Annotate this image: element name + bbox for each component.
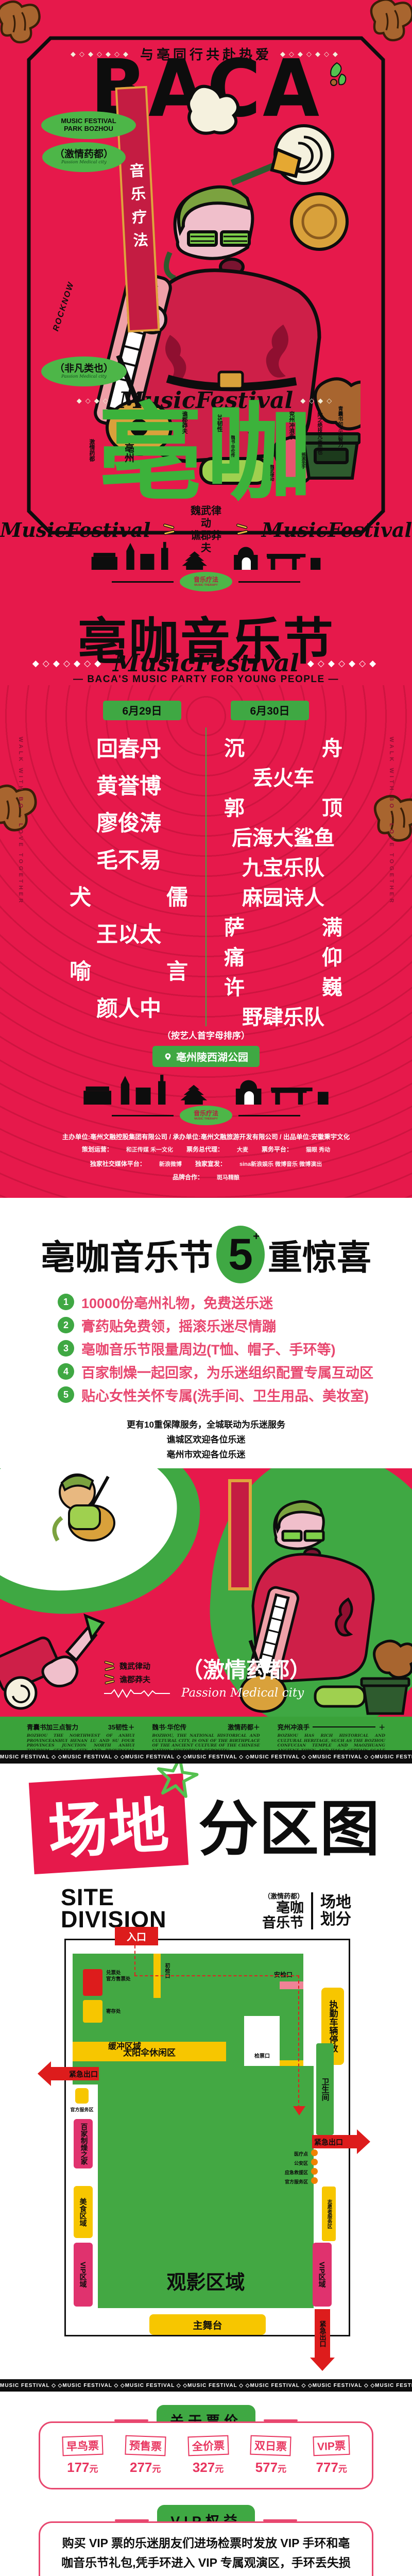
ticket-unit: 元	[215, 2464, 224, 2474]
divider-line	[112, 581, 174, 583]
music-festival-script: MusicFestival	[113, 649, 299, 677]
emergency-exit-arrow-down: 紧急出口	[315, 2309, 330, 2359]
emergency-exit-label: 紧急出口	[69, 2069, 98, 2079]
divider-line	[238, 1115, 300, 1116]
surprise-item: 3亳咖音乐节限量周边(T恤、帽子、手环等)	[58, 1340, 373, 1357]
venue-row: 亳州陵西湖公园	[0, 1046, 412, 1067]
therapy-title: 音乐疗法	[194, 1110, 218, 1117]
therapy-sub: MUSIC THERAPY	[194, 584, 218, 587]
toilet-zone: 卫生间	[316, 2043, 334, 2135]
security-label: 安检口	[274, 1970, 293, 1979]
lineup-item: 郭顶	[224, 791, 342, 821]
lineup-item: 许巍	[224, 971, 342, 1001]
side-note: 亳州	[122, 443, 135, 463]
storage-box	[83, 2000, 102, 2023]
info-column-head: 兖州冲浪手 ＋	[278, 1722, 385, 1732]
service-area-label: 官方服务区	[64, 2106, 100, 2113]
site-right-small: （激情药都）	[262, 1891, 304, 1901]
diamond-row-icon: ◆◇◆◇◆◇◆	[32, 658, 105, 669]
vip-description: 购买 VIP 票的乐迷朋友们进场检票时发放 VIP 手环和亳咖音乐节礼包,凭手环…	[59, 2533, 353, 2576]
sponsor-logos: 斑马精酿	[217, 1173, 239, 1181]
slogan-badge-1: （激情药都） Passion Medical city	[42, 142, 126, 172]
mallets-icon	[103, 1673, 116, 1686]
lineup-item: 犬儒	[70, 880, 188, 911]
sponsor-label: 品牌合作：	[173, 1173, 203, 1181]
ticket-unit: 元	[152, 2464, 161, 2474]
item-number-icon: 1	[58, 1294, 74, 1310]
divider-line	[238, 581, 300, 583]
vip-zone-left: VIP区域	[74, 2243, 93, 2307]
info-column-3: 兖州冲浪手 ＋ BOZHOU HAS RICH HISTORICAL AND C…	[278, 1722, 385, 1750]
ticker-text: MUSIC FESTIVAL ◇ ◇	[250, 2383, 312, 2388]
surprise-text: 10000份亳州礼物，免费送乐迷	[81, 1292, 273, 1312]
lineup-item: 九宝乐队	[242, 851, 324, 881]
stamp-block: 魏武律动 谯郡莽夫	[103, 1660, 180, 1701]
ticket-type: 预售票277元	[125, 2436, 166, 2476]
side-note: 激情药都	[88, 439, 96, 462]
script-row-3: ◆◇◆◇◆◇◆ MusicFestival ◆◇◆◇◆◇◆	[0, 649, 412, 677]
skyline-silhouette	[0, 540, 412, 570]
ticket-check-label: 检票口	[254, 2052, 270, 2059]
info-zh-right: 激情药都＋	[228, 1722, 260, 1732]
lineup-item: 黄誉博	[96, 769, 161, 800]
ticket-type: 早鸟票177元	[62, 2436, 103, 2476]
ticket-name: VIP票	[313, 2435, 350, 2455]
site-right-a1: 亳咖	[262, 1901, 304, 1916]
mallets-icon	[103, 1660, 116, 1672]
surprises-title: 亳咖音乐节 5 + 重惊喜	[0, 1226, 412, 1283]
lineup-item: 沉舟	[224, 732, 342, 761]
therapy-badge-row: 音乐疗法 MUSIC THERAPY	[0, 572, 412, 591]
info-zh-left: 兖州冲浪手	[278, 1722, 310, 1732]
park-badge: MUSIC FESTIVAL PARK BOZHOU	[41, 111, 136, 139]
site-right-b1: 场地	[320, 1894, 351, 1911]
police-dot-icon	[311, 2159, 318, 2165]
stamp-line2: 谯郡莽夫	[119, 1675, 150, 1685]
venue-map: 入口 缓冲区域 兑票处 官方售票处 寄存处 初检口 安检口 检票口 执勤车辆停放…	[64, 1939, 350, 2336]
ticker-text: MUSIC FESTIVAL ◇ ◇	[0, 1754, 62, 1760]
surprises-list: 110000份亳州礼物，免费送乐迷 2膏药贴免费领，摇滚乐迷尽情蹦 3亳咖音乐节…	[58, 1294, 373, 1410]
music-festival-script: MusicFestival	[0, 518, 150, 541]
lineup-divider	[205, 727, 207, 1026]
ticket-price: 177	[67, 2460, 89, 2475]
surprise-item: 4百家制燥一起回家，为乐迷组织配置专属互动区	[58, 1363, 373, 1380]
entry-path	[298, 1975, 299, 2108]
entry-path	[134, 1975, 299, 1976]
big-green-wordmark: 亳咖	[0, 401, 412, 506]
official-ticket-label: 官方售票处	[106, 1976, 131, 1982]
sponsor-label: 策划运营：	[82, 1145, 113, 1154]
vip-zone-right: VIP区域	[313, 2243, 332, 2307]
food-zone: 美食区域	[74, 2186, 93, 2238]
star-icon	[154, 1764, 200, 1800]
music-therapy-badge: 音乐疗法 MUSIC THERAPY	[180, 1106, 232, 1125]
badge-line	[263, 2519, 297, 2521]
lineup-item: 回春丹	[96, 732, 161, 763]
therapy-badge-row: 音乐疗法 MUSIC THERAPY	[0, 1106, 412, 1125]
ticket-type: 双日票577元	[250, 2436, 291, 2476]
surprises-footer: 更有10重保障服务，全城联动为乐迷服务 谯城区欢迎各位乐迷 亳州市欢迎各位乐迷	[0, 1417, 412, 1462]
ticker-text: MUSIC FESTIVAL ◇ ◇	[125, 1754, 187, 1760]
main-stage: 主舞台	[149, 2314, 266, 2335]
surprise-text: 膏药贴免费领，摇滚乐迷尽情蹦	[81, 1315, 276, 1335]
ticket-type: VIP票777元	[313, 2436, 350, 2476]
ticket-price: 327	[193, 2460, 215, 2475]
english-subtitle: — BACA'S MUSIC PARTY FOR YOUNG PEOPLE —	[0, 674, 412, 685]
badge-line	[114, 2419, 148, 2421]
item-number-icon: 4	[58, 1363, 74, 1380]
waveform-icon	[103, 1689, 170, 1698]
ticket-name: 双日票	[250, 2435, 291, 2456]
surprise-item: 110000份亳州礼物，免费送乐迷	[58, 1294, 373, 1310]
redeem-box	[83, 1969, 102, 1996]
service-area-box	[75, 2088, 89, 2104]
slogan-badge-1-title: （激情药都）	[55, 149, 113, 160]
info-en-text: BOZHOU THE NORTHWEST OF ANHUI PROVINCEAN…	[27, 1733, 134, 1750]
baijia-zone: 百家制燥之家	[74, 2119, 93, 2168]
ticker-bar: MUSIC FESTIVAL ◇ ◇MUSIC FESTIVAL ◇ ◇MUSI…	[0, 1750, 412, 1764]
ticket-type: 全价票327元	[188, 2436, 229, 2476]
lineup-item: 痛仰	[224, 941, 342, 971]
service-right-label: 官方服务区	[271, 2178, 308, 2185]
artist-order-note: （按艺人首字母排序）	[0, 1028, 412, 1041]
site-title-pink-box: 场地	[29, 1773, 188, 1874]
lineup-item: 麻园诗人	[242, 881, 324, 911]
stamp-line1: 魏武律动	[188, 505, 224, 530]
info-section: 关于票价 早鸟票177元 预售票277元 全价票327元 双日票577元 VIP…	[0, 2392, 412, 2576]
lineup-item: 后海大鲨鱼	[232, 821, 335, 851]
site-right-a2: 音乐节	[262, 1916, 304, 1930]
site-division-section: 场地 分区图 SITE DIVISION （激情药都） 亳咖 音乐节 场地 划分…	[0, 1764, 412, 2379]
midart-subtitle: Passion Medical city	[181, 1686, 311, 1700]
side-slogan-right: WALK WITH BO · LOVE TOGETHER	[388, 737, 394, 905]
security-bar	[280, 1981, 303, 1989]
footer-line: 更有10重保障服务，全城联动为乐迷服务	[0, 1417, 412, 1432]
ticket-name: 预售票	[125, 2435, 166, 2456]
site-title-pink: 场地	[45, 1777, 172, 1871]
site-right-b2: 划分	[320, 1911, 351, 1928]
info-zh-left: 魏书·华佗传	[152, 1722, 186, 1732]
slogan-badge-2: （非凡类也） Passion Medical city	[41, 357, 127, 386]
skyline-silhouette	[0, 1073, 412, 1105]
ticket-name: 全价票	[187, 2435, 229, 2456]
lineup-day1: 回春丹 黄誉博 廖俊涛 毛不易 犬儒 王以太 喻言 颜人中	[57, 732, 201, 1023]
diamond-row-icon: ◆◇◆◇◆◇◆	[307, 658, 380, 669]
sponsor-logos: 大麦	[237, 1145, 248, 1154]
info-column-1: 青囊书加三点智力 35韧性＋ BOZHOU THE NORTHWEST OF A…	[27, 1722, 134, 1750]
ticket-unit: 元	[278, 2464, 286, 2474]
item-number-icon: 3	[58, 1340, 74, 1357]
side-slogan-left: WALK WITH BO · LOVE TOGETHER	[18, 737, 24, 905]
surprises-title-pre: 亳咖音乐节	[41, 1230, 213, 1280]
ticker-text: MUSIC FESTIVAL ◇ ◇	[375, 2383, 412, 2388]
side-note: 谯郡莽夫	[180, 411, 188, 434]
slogan-badge-1-sub: Passion Medical city	[61, 160, 107, 165]
sponsor-logos: 和正传媒 禾一文化	[126, 1145, 173, 1154]
ticker-text: MUSIC FESTIVAL ◇ ◇	[62, 2383, 125, 2388]
lineup-item: 廖俊涛	[96, 806, 161, 837]
slogan-badge-2-title: （非凡类也）	[55, 363, 113, 375]
ticker-bar: MUSIC FESTIVAL ◇ ◇MUSIC FESTIVAL ◇ ◇MUSI…	[0, 2379, 412, 2392]
site-right-name: （激情药都） 亳咖 音乐节	[262, 1891, 304, 1930]
ticker-text: MUSIC FESTIVAL ◇ ◇	[250, 1754, 312, 1760]
sponsor-row-1: 策划运营： 和正传媒 禾一文化 票务总代理： 大麦 票务平台： 猫眼 秀动	[0, 1145, 412, 1154]
map-entrance-badge: 入口	[115, 1927, 158, 1945]
ticker-text: MUSIC FESTIVAL ◇ ◇	[0, 2383, 62, 2388]
sponsor-label: 独家宣发：	[195, 1159, 226, 1168]
footer-line: 亳州市欢迎各位乐迷	[0, 1447, 412, 1462]
site-en-title: SITE DIVISION	[61, 1886, 167, 1930]
therapy-sub: MUSIC THERAPY	[194, 1117, 218, 1121]
vip-box: 购买 VIP 票的乐迷朋友们进场检票时发放 VIP 手环和亳咖音乐节礼包,凭手环…	[39, 2521, 373, 2576]
ticker-text: MUSIC FESTIVAL ◇ ◇	[62, 1754, 125, 1760]
emergency-exit-label: 紧急出口	[314, 2137, 343, 2147]
lineup-item: 颜人中	[96, 991, 161, 1023]
monkey-musician-illustration	[31, 1468, 134, 1559]
service-dot-icon	[311, 2177, 318, 2184]
ticker-text: MUSIC FESTIVAL ◇ ◇	[187, 1754, 250, 1760]
ticker-text: MUSIC FESTIVAL ◇ ◇	[313, 1754, 375, 1760]
venue-name: 亳州陵西湖公园	[176, 1049, 248, 1064]
divider-line	[313, 1726, 375, 1727]
music-festival-script: MusicFestival	[262, 518, 412, 541]
divider-line	[311, 1892, 313, 1929]
sponsor-logos: sina新浪娱乐 微博音乐 微博演出	[239, 1160, 322, 1168]
organizers-line: 主办单位:亳州文融控股集团有限公司 / 承办单位:亳州文融旅游开发有限公司 / …	[0, 1131, 412, 1141]
entry-path-arrow-icon	[293, 2106, 305, 2122]
sponsor-label: 票务总代理：	[186, 1145, 224, 1154]
ticket-unit: 元	[338, 2464, 347, 2474]
ticket-unit: 元	[90, 2464, 98, 2474]
site-title-row: 场地 分区图	[0, 1778, 412, 1870]
storage-label: 寄存处	[106, 2007, 121, 2014]
music-therapy-badge: 音乐疗法 MUSIC THERAPY	[180, 572, 232, 591]
sponsor-logos: 猫眼 秀动	[306, 1145, 330, 1154]
site-en-line1: SITE	[61, 1886, 167, 1908]
site-right-group: （激情药都） 亳咖 音乐节 场地 划分	[262, 1891, 351, 1930]
lineup-item: 丢火车	[252, 761, 314, 791]
ticker-text: MUSIC FESTIVAL ◇ ◇	[125, 2383, 187, 2388]
midart-section: 魏武律动 谯郡莽夫 （激情药都） Passion Medical city	[0, 1468, 412, 1717]
footer-line: 谯城区欢迎各位乐迷	[0, 1432, 412, 1447]
lineup-item: 王以太	[96, 917, 161, 948]
sponsor-logos: 新浪微博	[159, 1160, 182, 1168]
surprises-count-badge: 5 +	[216, 1226, 265, 1283]
ticker-text: MUSIC FESTIVAL ◇ ◇	[187, 2383, 250, 2388]
surprises-count: 5	[228, 1229, 253, 1280]
info-en-text: BOZHOU, THE NATIONAL HISTORICAL AND CULT…	[152, 1733, 260, 1750]
ticket-name: 早鸟票	[62, 2435, 103, 2456]
date-badge-day1: 6月29日	[103, 701, 181, 720]
info-en-text: BOZHOU HAS RICH HISTORICAL AND CULTURAL …	[278, 1733, 385, 1750]
medical-dot-icon	[311, 2149, 318, 2156]
sponsor-row-2: 独家社交媒体平台： 新浪微博 独家宣发： sina新浪娱乐 微博音乐 微博演出	[0, 1159, 412, 1168]
surprises-section: 亳咖音乐节 5 + 重惊喜 110000份亳州礼物，免费送乐迷 2膏药贴免费领，…	[0, 1198, 412, 1468]
surprise-item: 5贴心女性关怀专属(洗手间、卫生用品、美妆室)	[58, 1386, 373, 1403]
midart-title-block: （激情药都） Passion Medical city	[181, 1653, 311, 1700]
side-note: 兖州冲浪手	[287, 411, 296, 439]
rescue-dot-icon	[311, 2168, 318, 2175]
site-title-black: 分区图	[198, 1781, 381, 1867]
surprise-text: 百家制燥一起回家，为乐迷组织配置专属互动区	[81, 1362, 373, 1382]
divider-line	[112, 1115, 174, 1116]
volunteer-zone: 志愿者服务区	[322, 2187, 336, 2241]
date-badge-day2: 6月30日	[231, 701, 309, 720]
info-zh-right: ＋	[379, 1722, 385, 1732]
site-right-b: 场地 划分	[320, 1894, 351, 1928]
ticket-price: 277	[130, 2460, 152, 2475]
side-note: 35韧性	[215, 414, 224, 432]
park-badge-line2: PARK BOZHOU	[64, 125, 113, 133]
side-note: 青囊书加三点智力	[336, 406, 344, 447]
ticker-text: MUSIC FESTIVAL ◇ ◇	[313, 2383, 375, 2388]
surprise-text: 亳咖音乐节限量周边(T恤、帽子、手环等)	[81, 1338, 335, 1359]
mallets-icon	[235, 522, 250, 537]
viewing-area-label: 观影区域	[98, 2266, 314, 2295]
surprises-plus: +	[253, 1230, 260, 1243]
info-zh-right: 35韧性＋	[108, 1722, 134, 1732]
ticket-price: 577	[255, 2460, 278, 2475]
item-number-icon: 5	[58, 1386, 74, 1403]
redeem-label: 兑票处	[106, 1970, 121, 1976]
medical-label: 医疗点	[271, 2150, 308, 2157]
side-note: 魏书·华佗传	[230, 435, 236, 457]
info-column-2: 魏书·华佗传 激情药都＋ BOZHOU, THE NATIONAL HISTOR…	[152, 1722, 260, 1750]
surprise-item: 2膏药贴免费领，摇滚乐迷尽情蹦	[58, 1317, 373, 1333]
ticket-price-box: 早鸟票177元 预售票277元 全价票327元 双日票577元 VIP票777元	[39, 2421, 373, 2489]
police-label: 公安区	[271, 2160, 308, 2166]
entry-path	[134, 1945, 135, 1975]
info-column-head: 魏书·华佗传 激情药都＋	[152, 1722, 260, 1732]
location-pin-icon	[164, 1053, 172, 1061]
park-badge-line1: MUSIC FESTIVAL	[61, 117, 116, 125]
item-number-icon: 2	[58, 1317, 74, 1333]
map-buffer-band	[73, 1954, 303, 2016]
site-subtitle-row: SITE DIVISION （激情药都） 亳咖 音乐节 场地 划分	[61, 1886, 351, 1930]
info-column-head: 青囊书加三点智力 35韧性＋	[27, 1722, 134, 1732]
sponsor-row-3: 品牌合作： 斑马精酿	[0, 1173, 412, 1181]
venue-badge: 亳州陵西湖公园	[152, 1046, 260, 1067]
sponsor-label: 独家社交媒体平台：	[90, 1159, 146, 1168]
buffer-area-label: 缓冲区域	[108, 2039, 141, 2052]
surprise-text: 贴心女性关怀专属(洗手间、卫生用品、美妆室)	[81, 1385, 369, 1405]
slogan-badge-2-sub: Passion Medical city	[61, 375, 107, 380]
poster-section: ◆◇◆◇◆◇◆ 与亳同行共赴热爱 ◆◇◆◇◆◇◆ BACA MUSIC FEST…	[0, 0, 412, 1198]
surprises-title-post: 重惊喜	[268, 1230, 371, 1280]
info-zh-left: 青囊书加三点智力	[27, 1722, 78, 1732]
date-badges: 6月29日 6月30日	[0, 701, 412, 720]
lineup-day2: 沉舟 丢火车 郭顶 后海大鲨鱼 九宝乐队 麻园诗人 萨满 痛仰 许巍 野肆乐队	[211, 732, 355, 1028]
viewing-area: 观影区域	[98, 2066, 314, 2308]
stamp-line1: 魏武律动	[119, 1662, 150, 1671]
lineup-item: 喻言	[70, 954, 188, 986]
rescue-label: 应急救援区	[271, 2169, 308, 2176]
mallets-icon	[162, 522, 177, 537]
lineup-item: 野肆乐队	[242, 1001, 324, 1030]
badge-line	[115, 2519, 149, 2521]
lineup-item: 毛不易	[96, 843, 161, 874]
badge-line	[264, 2419, 298, 2421]
sponsor-label: 票务平台：	[262, 1145, 293, 1154]
side-note: 魏武律动	[269, 465, 275, 481]
side-note: 陀之绝技 凡此类也	[315, 412, 323, 455]
green-info-band: 青囊书加三点智力 35韧性＋ BOZHOU THE NORTHWEST OF A…	[0, 1717, 412, 1750]
side-note: 摇滚圣手	[301, 452, 306, 469]
midart-title: （激情药都）	[181, 1653, 311, 1684]
umbrella-rest-zone: 太阳伞休闲区	[73, 2042, 226, 2061]
lineup-item: 萨满	[224, 911, 342, 941]
ticker-text: MUSIC FESTIVAL ◇ ◇	[375, 1754, 412, 1760]
ticket-price: 777	[316, 2460, 338, 2475]
therapy-title: 音乐疗法	[194, 577, 218, 583]
